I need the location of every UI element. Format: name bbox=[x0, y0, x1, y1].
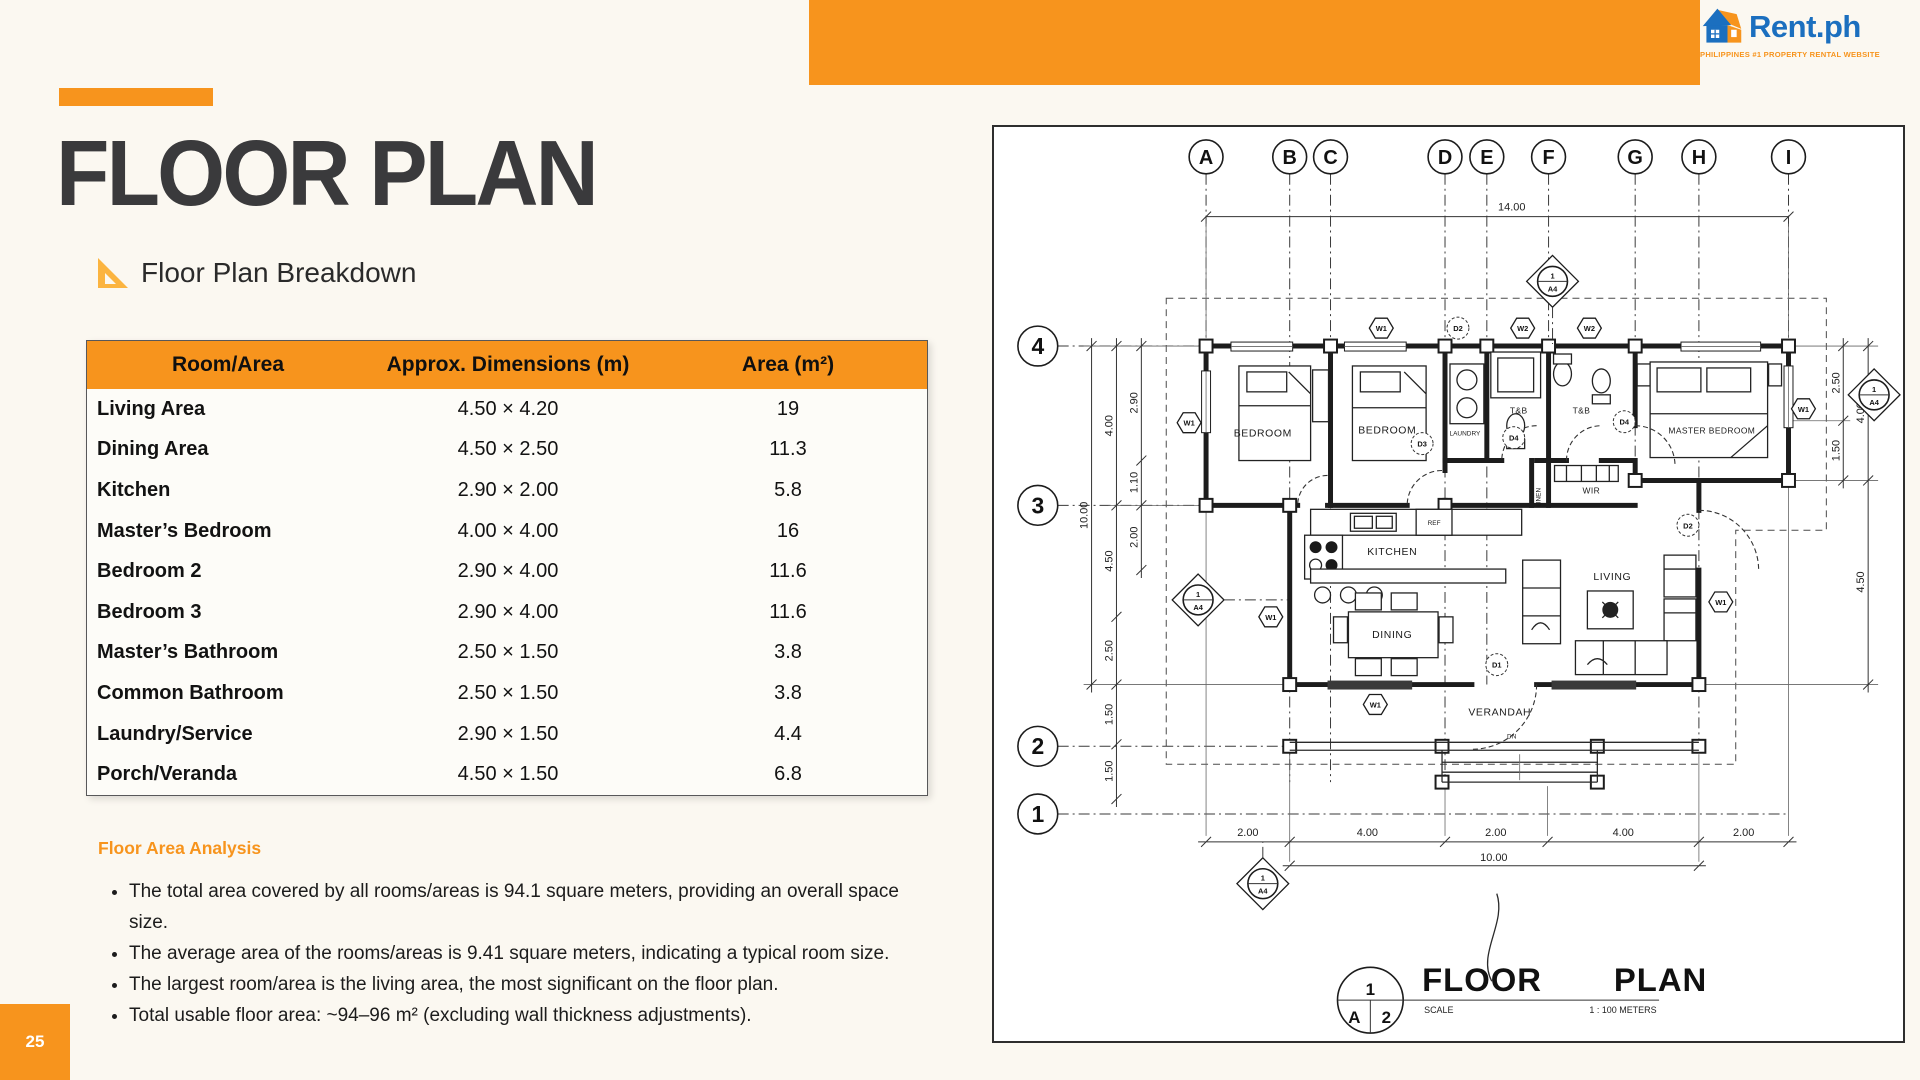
svg-text:D4: D4 bbox=[1509, 434, 1519, 443]
dimension-chains: 14.00 10.00 4.00 4.50 2.50 1.50 1.50 2.9… bbox=[1079, 202, 1874, 871]
table-row: Master’s Bathroom2.50 × 1.503.8 bbox=[87, 633, 927, 674]
svg-text:D2: D2 bbox=[1683, 521, 1693, 530]
svg-text:4.50: 4.50 bbox=[1855, 571, 1867, 592]
svg-text:D: D bbox=[1438, 147, 1452, 169]
svg-text:2.00: 2.00 bbox=[1485, 827, 1506, 839]
col-header-dims: Approx. Dimensions (m) bbox=[369, 353, 647, 377]
w1-marker: W1 bbox=[1363, 695, 1387, 715]
bullet-item: The average area of the rooms/areas is 9… bbox=[129, 938, 929, 969]
logo: Rent.ph PHILIPPINES #1 PROPERTY RENTAL W… bbox=[1700, 5, 1905, 59]
w2-marker: W2 bbox=[1577, 318, 1601, 338]
subtitle-row: Floor Plan Breakdown bbox=[95, 256, 416, 290]
accent-bar bbox=[59, 88, 213, 106]
room-label: DN bbox=[1507, 733, 1517, 740]
grid-col-bubbles: A B C D E F G H I bbox=[1189, 140, 1805, 174]
room-label: T&B bbox=[1573, 406, 1591, 416]
page-number: 25 bbox=[0, 1004, 70, 1080]
svg-text:1: 1 bbox=[1261, 874, 1265, 883]
svg-text:2.00: 2.00 bbox=[1128, 527, 1140, 548]
table-header-row: Room/Area Approx. Dimensions (m) Area (m… bbox=[87, 341, 927, 389]
analysis-heading: Floor Area Analysis bbox=[98, 838, 261, 859]
svg-text:1: 1 bbox=[1031, 801, 1044, 827]
svg-text:4.00: 4.00 bbox=[1613, 827, 1634, 839]
table-row: Living Area4.50 × 4.2019 bbox=[87, 389, 927, 430]
svg-text:W1: W1 bbox=[1376, 324, 1387, 333]
svg-text:2: 2 bbox=[1031, 733, 1044, 759]
svg-text:G: G bbox=[1627, 147, 1642, 169]
svg-text:A: A bbox=[1199, 147, 1213, 169]
top-banner bbox=[809, 0, 1700, 85]
svg-text:1.50: 1.50 bbox=[1830, 440, 1842, 461]
svg-text:3: 3 bbox=[1031, 492, 1044, 518]
w1-marker: W1 bbox=[1369, 318, 1393, 338]
svg-text:2.90: 2.90 bbox=[1128, 392, 1140, 413]
slide: Rent.ph PHILIPPINES #1 PROPERTY RENTAL W… bbox=[0, 0, 1920, 1080]
w2-marker: W2 bbox=[1511, 318, 1535, 338]
table-row: Bedroom 22.90 × 4.0011.6 bbox=[87, 551, 927, 592]
svg-text:W1: W1 bbox=[1715, 598, 1726, 607]
svg-text:A4: A4 bbox=[1548, 284, 1558, 293]
svg-text:4: 4 bbox=[1031, 333, 1044, 359]
a4-marker: 1A4 bbox=[1237, 842, 1289, 910]
room-label: BEDROOM bbox=[1234, 429, 1292, 440]
svg-text:1.50: 1.50 bbox=[1103, 704, 1115, 725]
bed-icon bbox=[1239, 366, 1329, 461]
room-label: LAUNDRY bbox=[1450, 431, 1481, 438]
w1-marker: W1 bbox=[1177, 413, 1201, 433]
svg-text:B: B bbox=[1283, 147, 1297, 169]
svg-text:1.50: 1.50 bbox=[1103, 761, 1115, 782]
svg-text:4.00: 4.00 bbox=[1103, 415, 1115, 436]
svg-text:H: H bbox=[1692, 147, 1706, 169]
col-header-area: Area (m²) bbox=[647, 353, 929, 377]
room-label: LINEN bbox=[1536, 488, 1543, 507]
svg-text:W2: W2 bbox=[1584, 324, 1595, 333]
table-row: Porch/Veranda4.50 × 1.506.8 bbox=[87, 754, 927, 795]
svg-text:D4: D4 bbox=[1619, 418, 1629, 427]
svg-text:10.00: 10.00 bbox=[1079, 502, 1091, 529]
w1-marker: W1 bbox=[1791, 399, 1815, 419]
room-label: DINING bbox=[1372, 630, 1412, 641]
room-label: MASTER BEDROOM bbox=[1668, 426, 1755, 436]
room-label: WIR bbox=[1583, 485, 1601, 495]
scale-label: SCALE bbox=[1424, 1005, 1453, 1015]
scale-value: 1 : 100 METERS bbox=[1589, 1005, 1656, 1015]
house-icon bbox=[1700, 5, 1744, 49]
room-label: VERANDAH bbox=[1468, 707, 1531, 718]
veranda-steps bbox=[1290, 742, 1699, 782]
svg-text:1.10: 1.10 bbox=[1128, 472, 1140, 493]
svg-text:D2: D2 bbox=[1453, 324, 1463, 333]
svg-text:14.00: 14.00 bbox=[1498, 202, 1525, 214]
table-row: Laundry/Service2.90 × 1.504.4 bbox=[87, 714, 927, 755]
svg-text:4.00: 4.00 bbox=[1357, 827, 1378, 839]
sheet-letter: A bbox=[1348, 1008, 1360, 1027]
svg-text:2.00: 2.00 bbox=[1237, 827, 1258, 839]
room-label: REF bbox=[1428, 520, 1441, 527]
floor-plan-svg: W1 W1 W1 W1 W1 W1 W2 W2 D2 D3 D4 D4 D2 D… bbox=[994, 127, 1903, 1041]
table-row: Common Bathroom2.50 × 1.503.8 bbox=[87, 673, 927, 714]
w1-marker: W1 bbox=[1709, 592, 1733, 612]
bullet-item: Total usable floor area: ~94–96 m² (excl… bbox=[129, 1000, 929, 1031]
col-header-room: Room/Area bbox=[87, 353, 369, 377]
a4-marker: 1A4 bbox=[1527, 255, 1579, 344]
d2-marker: D2 bbox=[1677, 514, 1699, 536]
svg-text:A4: A4 bbox=[1869, 398, 1879, 407]
d4-marker: D4 bbox=[1613, 411, 1635, 433]
logo-name: Rent.ph bbox=[1749, 9, 1861, 45]
bullet-item: The total area covered by all rooms/area… bbox=[129, 876, 929, 938]
logo-tagline: PHILIPPINES #1 PROPERTY RENTAL WEBSITE bbox=[1700, 50, 1880, 59]
subtitle-text: Floor Plan Breakdown bbox=[141, 257, 416, 289]
d4-marker: D4 bbox=[1503, 427, 1525, 449]
svg-text:W1: W1 bbox=[1184, 419, 1195, 428]
svg-text:A4: A4 bbox=[1193, 603, 1203, 612]
svg-text:A4: A4 bbox=[1258, 887, 1268, 896]
svg-text:1: 1 bbox=[1196, 590, 1200, 599]
grid-row-bubbles: 4 3 2 1 bbox=[1018, 326, 1058, 834]
room-label: T&B bbox=[1510, 406, 1528, 416]
page-title: FLOOR PLAN bbox=[56, 120, 596, 227]
d1-marker: D1 bbox=[1486, 654, 1508, 676]
sheet-page: 2 bbox=[1382, 1008, 1391, 1027]
svg-text:1: 1 bbox=[1872, 385, 1876, 394]
svg-text:4.50: 4.50 bbox=[1103, 550, 1115, 571]
d2-marker: D2 bbox=[1447, 317, 1469, 339]
svg-text:2.50: 2.50 bbox=[1103, 640, 1115, 661]
svg-text:W2: W2 bbox=[1517, 324, 1528, 333]
svg-text:W1: W1 bbox=[1265, 613, 1276, 622]
svg-text:I: I bbox=[1786, 147, 1792, 169]
room-label: BEDROOM bbox=[1358, 426, 1416, 437]
svg-text:10.00: 10.00 bbox=[1480, 852, 1507, 864]
room-label: KITCHEN bbox=[1367, 547, 1417, 558]
svg-text:W1: W1 bbox=[1798, 405, 1809, 414]
svg-text:2.50: 2.50 bbox=[1830, 372, 1842, 393]
table-row: Bedroom 32.90 × 4.0011.6 bbox=[87, 592, 927, 633]
table-row: Dining Area4.50 × 2.5011.3 bbox=[87, 430, 927, 471]
svg-text:1: 1 bbox=[1550, 271, 1554, 280]
wardrobe-icon bbox=[1555, 466, 1619, 482]
sheet-number: 1 bbox=[1366, 980, 1375, 999]
set-square-icon bbox=[95, 256, 129, 290]
svg-text:C: C bbox=[1323, 147, 1337, 169]
table-row: Master’s Bedroom4.00 × 4.0016 bbox=[87, 511, 927, 552]
room-label: LIVING bbox=[1593, 572, 1631, 583]
svg-text:D3: D3 bbox=[1417, 440, 1427, 449]
svg-text:D1: D1 bbox=[1492, 661, 1502, 670]
svg-text:2.00: 2.00 bbox=[1733, 827, 1754, 839]
table-row: Kitchen2.90 × 2.005.8 bbox=[87, 470, 927, 511]
svg-text:E: E bbox=[1480, 147, 1493, 169]
w1-marker: W1 bbox=[1259, 607, 1283, 627]
master-bed-icon bbox=[1637, 362, 1781, 458]
washer-icon bbox=[1450, 364, 1484, 424]
extension-lines bbox=[1084, 224, 1879, 862]
svg-text:W1: W1 bbox=[1370, 700, 1381, 709]
floor-plan-panel: W1 W1 W1 W1 W1 W1 W2 W2 D2 D3 D4 D4 D2 D… bbox=[992, 125, 1905, 1043]
grid-lines bbox=[1058, 174, 1789, 814]
analysis-bullets: The total area covered by all rooms/area… bbox=[104, 876, 929, 1031]
room-table: Room/Area Approx. Dimensions (m) Area (m… bbox=[86, 340, 928, 796]
svg-text:F: F bbox=[1542, 147, 1554, 169]
drawing-title-block: 1 A 2 FLOOR PLAN SCALE 1 : 100 METERS bbox=[1337, 894, 1707, 1033]
bullet-item: The largest room/area is the living area… bbox=[129, 969, 929, 1000]
drawing-title: FLOOR PLAN bbox=[1422, 961, 1707, 998]
